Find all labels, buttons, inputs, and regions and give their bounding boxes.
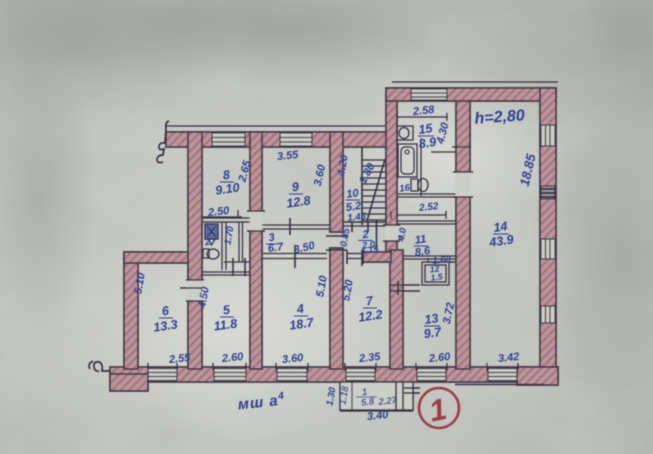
svg-text:8.9: 8.9 xyxy=(418,135,437,151)
svg-text:8.6: 8.6 xyxy=(414,245,432,259)
svg-text:2.35: 2.35 xyxy=(357,351,381,365)
svg-text:2.52: 2.52 xyxy=(417,201,439,214)
svg-text:3.60: 3.60 xyxy=(281,352,304,366)
svg-text:3.55: 3.55 xyxy=(276,149,299,163)
svg-text:1.5: 1.5 xyxy=(430,271,443,283)
svg-text:2.58: 2.58 xyxy=(411,104,435,118)
svg-text:2.50: 2.50 xyxy=(206,205,230,219)
svg-text:2.27: 2.27 xyxy=(377,395,398,408)
svg-text:1.45: 1.45 xyxy=(347,211,367,224)
svg-text:2.60: 2.60 xyxy=(220,351,244,365)
svg-text:9.7: 9.7 xyxy=(423,325,443,341)
svg-text:5.8: 5.8 xyxy=(360,396,375,409)
svg-text:3.40: 3.40 xyxy=(366,409,389,423)
svg-text:6.7: 6.7 xyxy=(267,241,285,255)
svg-text:h=2,80: h=2,80 xyxy=(474,107,525,127)
svg-text:3.42: 3.42 xyxy=(497,351,520,365)
svg-text:2.55: 2.55 xyxy=(167,352,191,366)
svg-text:2.60: 2.60 xyxy=(427,351,451,365)
